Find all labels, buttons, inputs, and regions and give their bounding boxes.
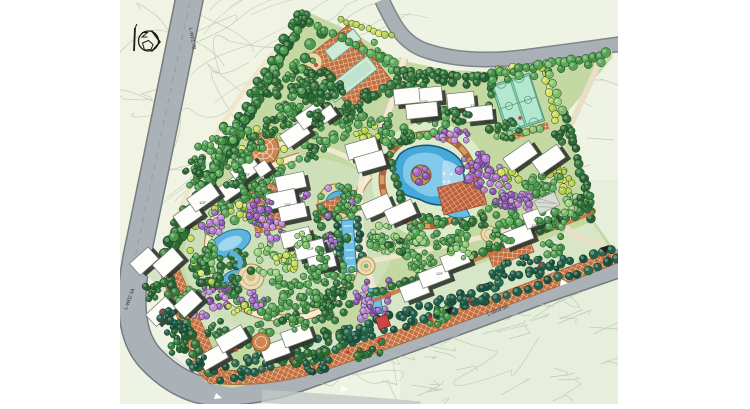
svg-text:12F: 12F — [421, 99, 428, 104]
svg-text:12F: 12F — [470, 103, 477, 108]
svg-text:12F: 12F — [436, 271, 443, 276]
svg-text:12F: 12F — [284, 202, 291, 207]
svg-text:12F: 12F — [199, 200, 206, 205]
